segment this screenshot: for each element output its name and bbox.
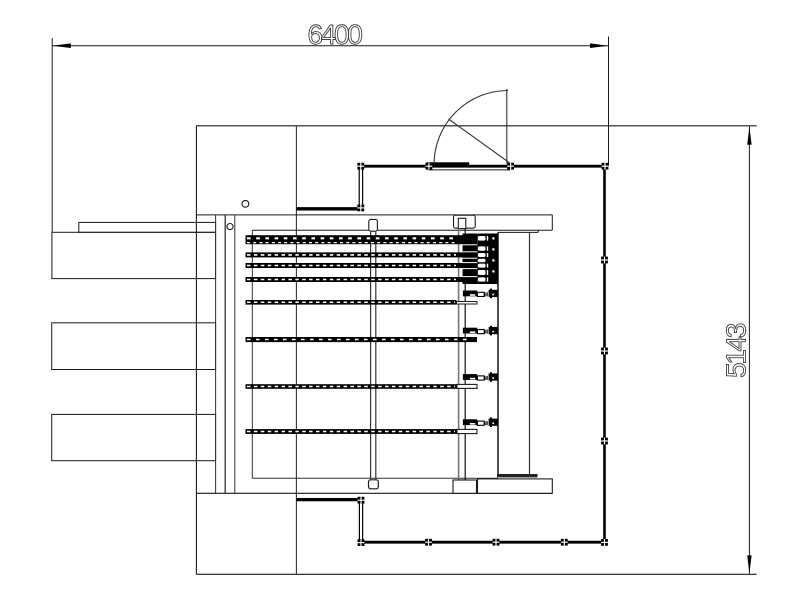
svg-text:5143: 5143 bbox=[719, 323, 751, 378]
svg-text:6400: 6400 bbox=[307, 18, 362, 50]
